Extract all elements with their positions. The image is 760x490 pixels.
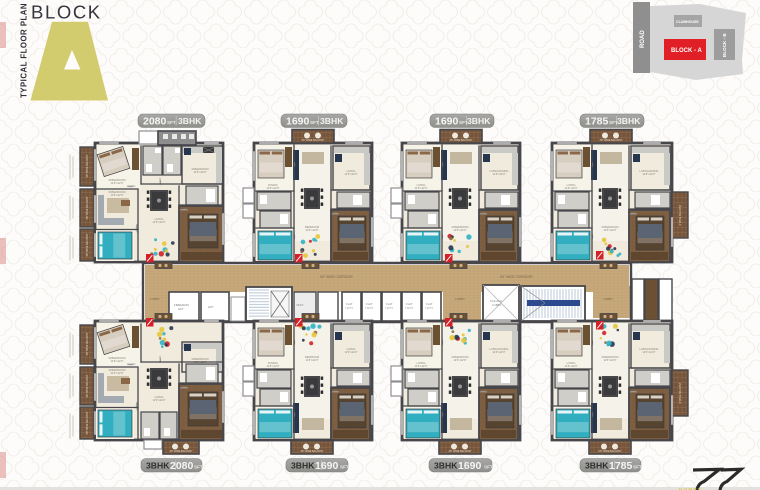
svg-text:3BHK: 3BHK [291, 461, 315, 471]
svg-text:3BHK: 3BHK [178, 116, 202, 126]
svg-text:3'6" WIDE BALCONY: 3'6" WIDE BALCONY [86, 374, 89, 397]
svg-text:SFT: SFT [340, 465, 349, 470]
svg-text:TYPICAL FLOOR PLAN: TYPICAL FLOOR PLAN [20, 3, 29, 98]
svg-text:LOBBY: LOBBY [603, 297, 613, 301]
svg-text:3'6" WIDE BALCONY: 3'6" WIDE BALCONY [600, 139, 623, 142]
svg-text:3'6" WIDE BALCONY: 3'6" WIDE BALCONY [86, 332, 89, 355]
svg-text:3BHK: 3BHK [146, 461, 170, 471]
svg-text:1690: 1690 [435, 116, 459, 128]
svg-text:11'6"x12'0": 11'6"x12'0" [603, 228, 616, 232]
svg-text:11'6"x12'0": 11'6"x12'0" [110, 181, 123, 185]
svg-text:7'0x7'0: 7'0x7'0 [425, 306, 434, 310]
svg-text:3BHK: 3BHK [434, 461, 458, 471]
svg-text:6' WIDE BALCONY: 6' WIDE BALCONY [679, 382, 682, 403]
svg-text:11'6"x12'0": 11'6"x12'0" [305, 228, 318, 232]
svg-text:11'6"x12'0": 11'6"x12'0" [492, 350, 505, 354]
svg-text:11'6"x12'0": 11'6"x12'0" [152, 220, 165, 224]
svg-text:11'6"x12'0": 11'6"x12'0" [453, 358, 466, 362]
svg-text:LIFT: LIFT [178, 307, 184, 311]
svg-text:11'6"x12'0": 11'6"x12'0" [603, 358, 616, 362]
svg-text:11'6"x12'0": 11'6"x12'0" [453, 228, 466, 232]
svg-text:3'6" WIDE BALCONY: 3'6" WIDE BALCONY [86, 411, 89, 434]
svg-text:SFT: SFT [194, 465, 203, 470]
svg-text:FLAT: FLAT [386, 302, 393, 306]
svg-text:1690: 1690 [458, 460, 482, 472]
svg-text:1690: 1690 [315, 460, 339, 472]
svg-text:7'0x7'0: 7'0x7'0 [385, 306, 394, 310]
svg-text:3'6" WIDE BALCONY: 3'6" WIDE BALCONY [86, 233, 89, 256]
svg-text:CLUBHOUSE: CLUBHOUSE [676, 20, 699, 24]
svg-text:11'6"x12'0": 11'6"x12'0" [414, 364, 427, 368]
svg-text:3'6" WIDE BALCONY: 3'6" WIDE BALCONY [301, 450, 324, 453]
svg-text:11'6"x12'0": 11'6"x12'0" [414, 186, 427, 190]
svg-text:3'6" WIDE BALCONY: 3'6" WIDE BALCONY [599, 450, 622, 453]
svg-text:11'6"x12'0": 11'6"x12'0" [110, 193, 123, 197]
svg-text:6' WIDE BALCONY: 6' WIDE BALCONY [679, 204, 682, 225]
svg-text:11'6"x12'0": 11'6"x12'0" [110, 359, 123, 363]
svg-text:7'0x7'0: 7'0x7'0 [405, 306, 414, 310]
svg-text:LIFT: LIFT [208, 305, 214, 309]
svg-text:6'6" WIDE CORRIDOR: 6'6" WIDE CORRIDOR [500, 275, 533, 279]
svg-text:FLAT: FLAT [426, 302, 433, 306]
svg-text:3'6" WIDE BALCONY: 3'6" WIDE BALCONY [86, 154, 89, 177]
svg-text:3BHK: 3BHK [585, 461, 609, 471]
svg-text:LOBBY: LOBBY [150, 297, 160, 301]
svg-text:11'6"x12'0": 11'6"x12'0" [193, 170, 206, 174]
svg-text:3'6" WIDE BALCONY: 3'6" WIDE BALCONY [449, 450, 472, 453]
svg-text:3'6" WIDE BALCONY: 3'6" WIDE BALCONY [302, 139, 325, 142]
svg-text:11'6"x12'0": 11'6"x12'0" [642, 172, 655, 176]
svg-text:3BHK: 3BHK [467, 116, 491, 126]
svg-text:11'6"x12'0": 11'6"x12'0" [266, 364, 279, 368]
svg-text:3'6" WIDE BALCONY: 3'6" WIDE BALCONY [170, 450, 193, 453]
svg-text:FLAT: FLAT [406, 302, 413, 306]
svg-text:FLAT: FLAT [346, 302, 353, 306]
svg-text:11'6"x12'0": 11'6"x12'0" [266, 186, 279, 190]
svg-text:1785: 1785 [609, 460, 633, 472]
svg-text:11'6"x12'0": 11'6"x12'0" [344, 350, 357, 354]
svg-text:SFT: SFT [633, 465, 642, 470]
svg-text:ROAD: ROAD [640, 30, 646, 48]
svg-text:BLOCK - A: BLOCK - A [671, 48, 702, 54]
svg-text:SFT: SFT [484, 465, 493, 470]
svg-text:11'6"x12'0": 11'6"x12'0" [564, 364, 577, 368]
svg-text:3BHK: 3BHK [320, 116, 344, 126]
svg-text:11'6"x12'0": 11'6"x12'0" [564, 186, 577, 190]
svg-text:1690: 1690 [286, 116, 310, 128]
svg-text:FLAT: FLAT [366, 302, 373, 306]
svg-text:11'6"x12'0": 11'6"x12'0" [642, 350, 655, 354]
svg-text:VENT.: VENT. [296, 303, 304, 307]
svg-text:2080: 2080 [170, 460, 194, 472]
svg-text:7'0x7'0: 7'0x7'0 [365, 306, 374, 310]
svg-text:SFT: SFT [310, 120, 319, 125]
svg-text:11'6"x12'0": 11'6"x12'0" [110, 371, 123, 375]
svg-text:7'0x7'0: 7'0x7'0 [345, 306, 354, 310]
svg-text:11'6"x12'0": 11'6"x12'0" [152, 398, 165, 402]
svg-text:LOBBY: LOBBY [455, 297, 465, 301]
svg-text:3'6" WIDE BALCONY: 3'6" WIDE BALCONY [86, 196, 89, 219]
svg-text:1785: 1785 [585, 116, 609, 128]
svg-text:11'6"x12'0": 11'6"x12'0" [344, 172, 357, 176]
svg-text:2080: 2080 [143, 116, 167, 128]
svg-text:6'6" WIDE CORRIDOR: 6'6" WIDE CORRIDOR [320, 275, 353, 279]
svg-text:BLOCK - B: BLOCK - B [722, 33, 727, 57]
svg-text:SFT: SFT [167, 120, 176, 125]
svg-text:LOBBY: LOBBY [492, 303, 501, 307]
svg-text:BLOCK: BLOCK [31, 2, 102, 23]
svg-text:11'6"x12'0": 11'6"x12'0" [492, 172, 505, 176]
svg-text:11'6"x12'0": 11'6"x12'0" [305, 358, 318, 362]
svg-text:3'6" WIDE BALCONY: 3'6" WIDE BALCONY [450, 139, 473, 142]
svg-text:3BHK: 3BHK [617, 116, 641, 126]
